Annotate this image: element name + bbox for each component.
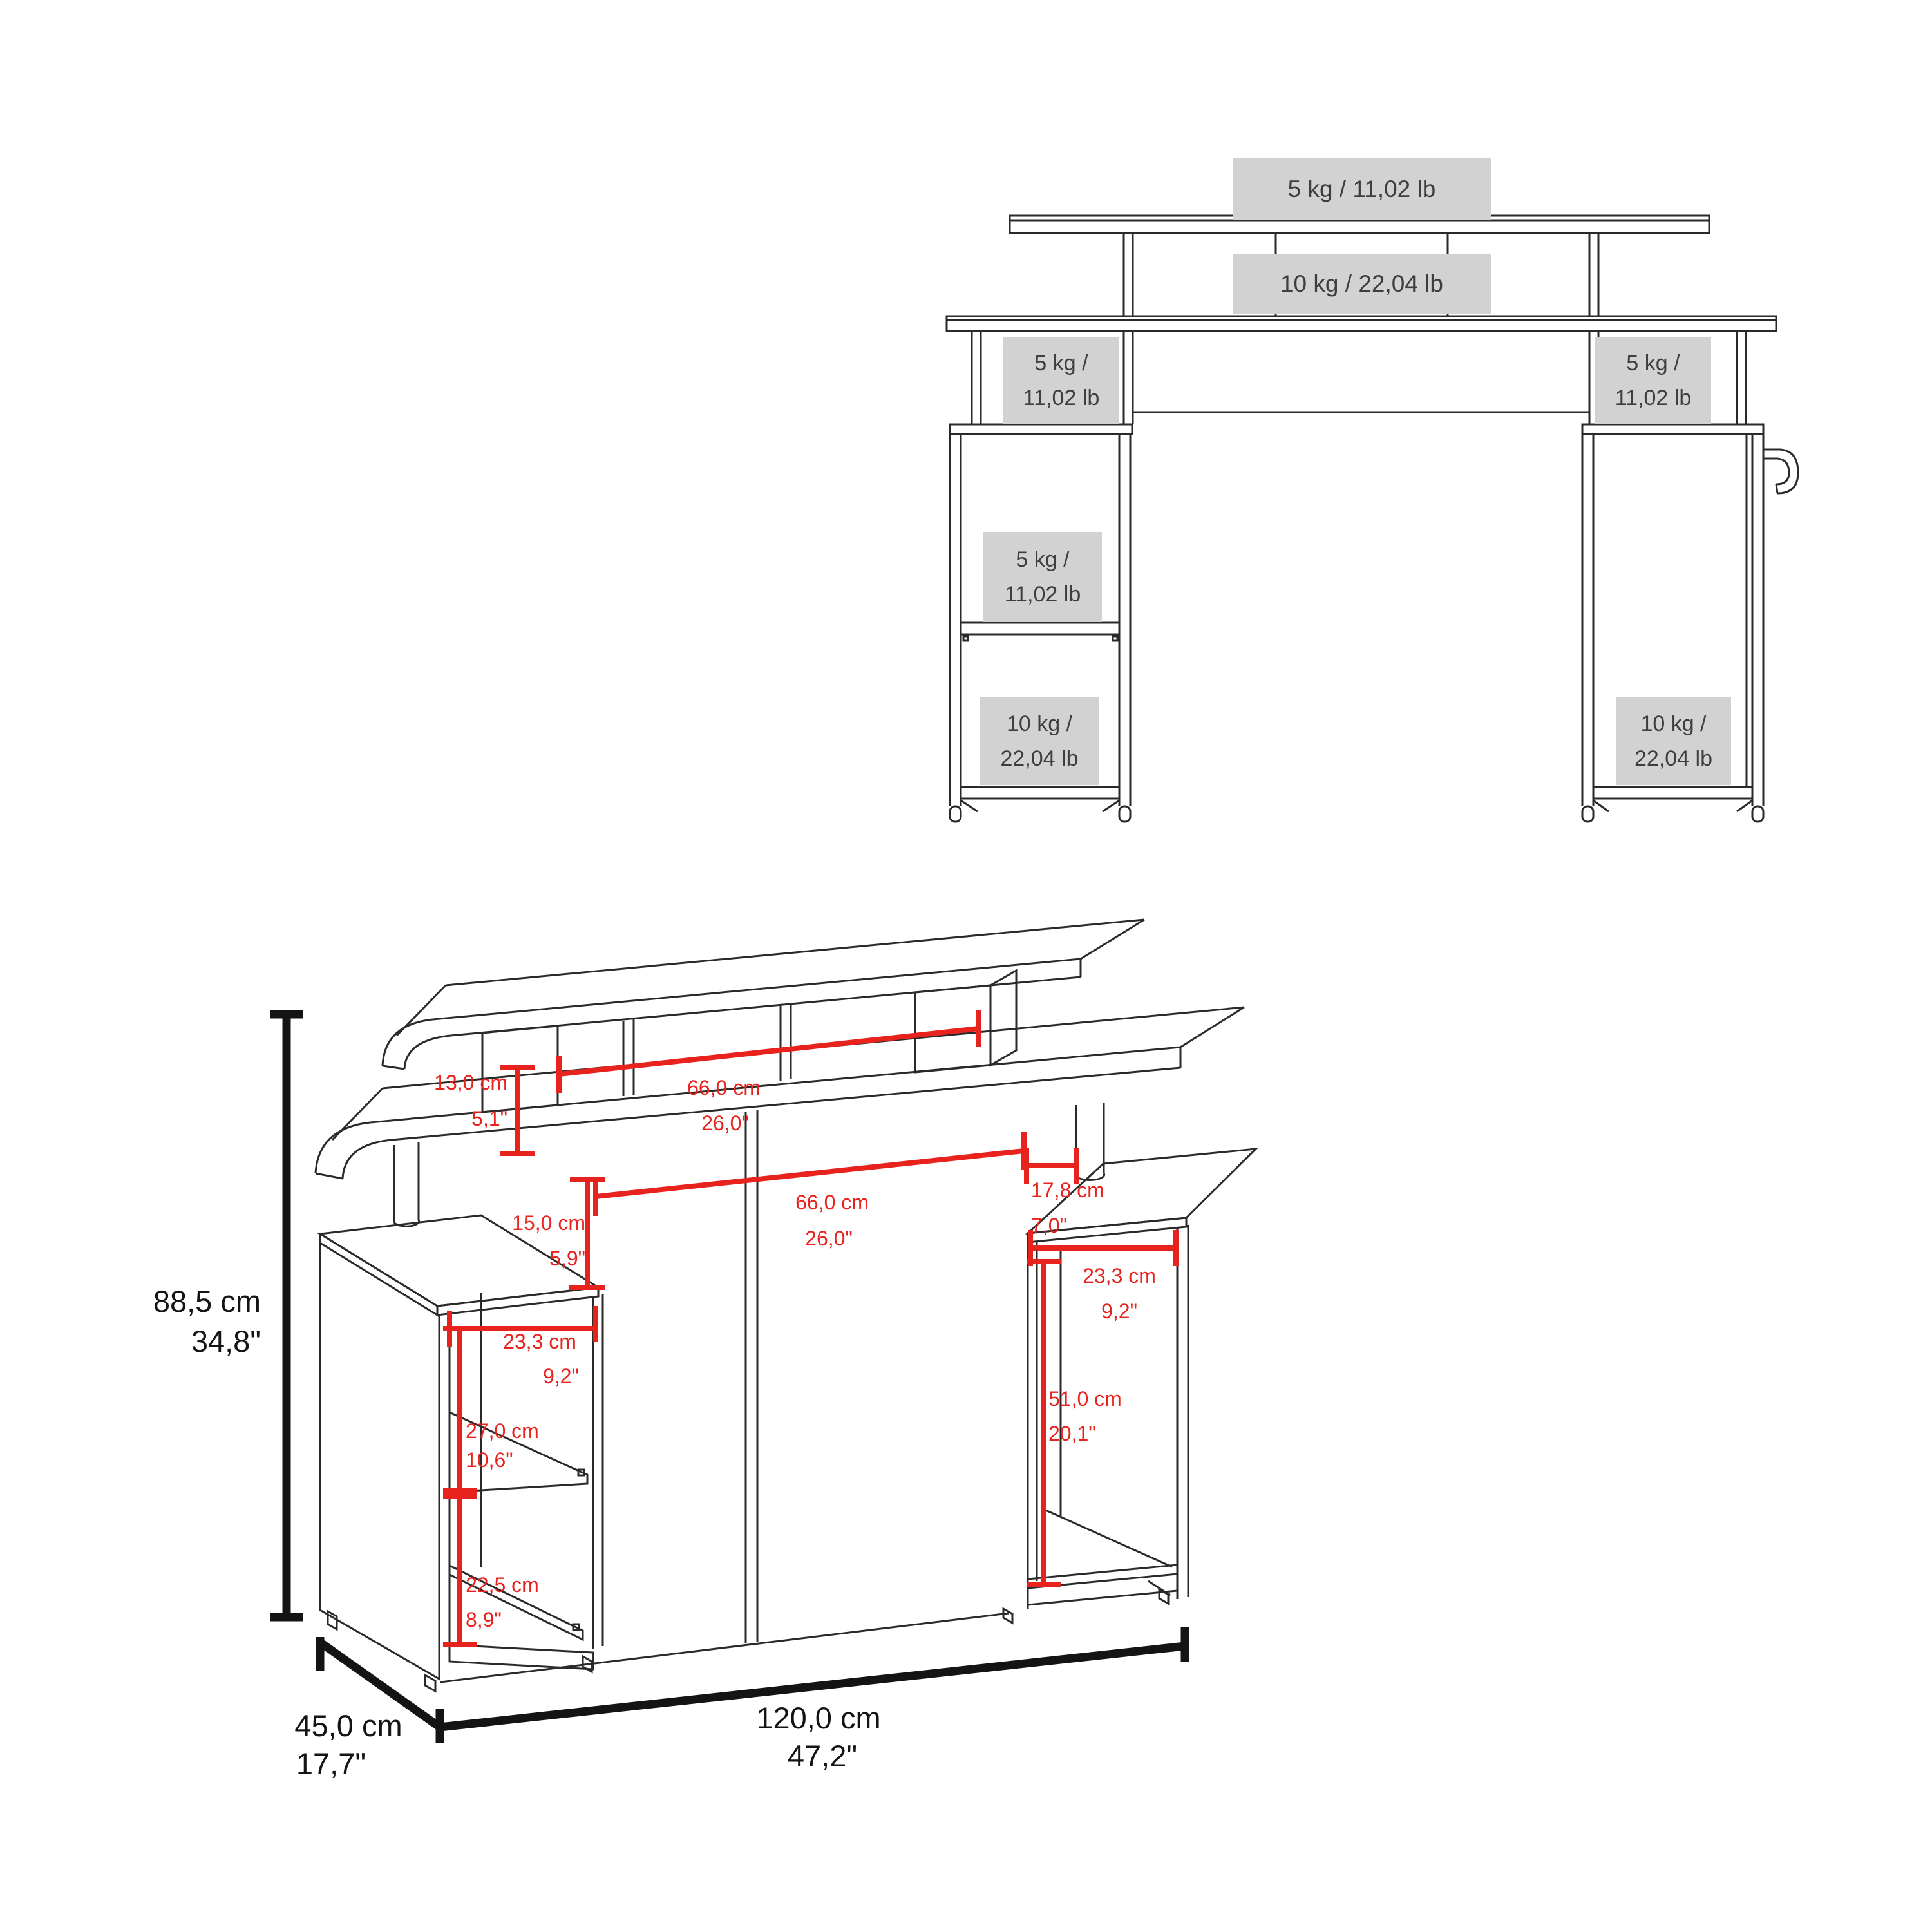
- iso-left-pedestal-top-band: [437, 1287, 598, 1315]
- dim-text-27-in: 10,6": [466, 1449, 633, 1471]
- dim-text-width-cm: 120,0 cm: [690, 1702, 947, 1734]
- iso-shelf-left-end: [383, 1066, 404, 1069]
- iso-left-pedestal-top-end: [320, 1234, 437, 1315]
- load-label-line: 5 kg /: [1626, 346, 1680, 381]
- dim-text-66-shelf-cm: 66,0 cm: [627, 1077, 820, 1099]
- front-left-pedestal-top: [950, 424, 1132, 434]
- dim-text-15-in: 5,9": [424, 1247, 585, 1269]
- front-foot: [1119, 806, 1130, 822]
- front-foot: [1582, 806, 1593, 822]
- headphone-hook-icon: [1776, 484, 1777, 493]
- dim-text-13-cm: 13,0 cm: [346, 1072, 507, 1094]
- load-label-line: 10 kg /: [1640, 706, 1706, 741]
- headphone-hook-icon: [1763, 450, 1798, 493]
- dim-text-23l-cm: 23,3 cm: [443, 1331, 636, 1352]
- iso-foot: [1003, 1609, 1012, 1623]
- load-label-right-riser: 5 kg / 11,02 lb: [1595, 337, 1711, 424]
- dim-text-width-in: 47,2": [694, 1740, 951, 1772]
- front-foot: [1752, 806, 1763, 822]
- spec-sheet-page: 5 kg / 11,02 lb 10 kg / 22,04 lb 5 kg / …: [0, 0, 1932, 1932]
- iso-desktop-left-end: [316, 1173, 343, 1179]
- dim-text-17-cm: 17,8 cm: [1031, 1179, 1198, 1201]
- front-shelf-pin: [1113, 636, 1117, 641]
- front-corner-brace: [1593, 800, 1609, 811]
- front-desktop-board: [947, 316, 1776, 331]
- load-label-line: 22,04 lb: [1634, 741, 1712, 776]
- front-right-pedestal-kick: [1593, 787, 1752, 799]
- load-label-line: 10 kg /: [1007, 706, 1072, 741]
- dim-text-66-desk-cm: 66,0 cm: [735, 1191, 929, 1213]
- iso-left-pedestal-side-panel: [320, 1243, 439, 1679]
- iso-foot: [425, 1675, 435, 1691]
- dim-text-depth-in: 17,7": [234, 1748, 428, 1780]
- dim-text-51-in: 20,1": [1048, 1423, 1216, 1444]
- front-foot: [950, 806, 961, 822]
- load-label-left-middle-shelf: 5 kg / 11,02 lb: [983, 532, 1102, 622]
- dim-text-height-in: 34,8": [68, 1325, 261, 1358]
- front-right-pedestal-top: [1582, 424, 1763, 434]
- headphone-hook-icon: [1763, 459, 1789, 484]
- iso-shelf-back-edge: [446, 920, 1144, 985]
- load-label-line: 11,02 lb: [1615, 381, 1691, 415]
- load-label-right-cabinet: 10 kg / 22,04 lb: [1616, 697, 1731, 785]
- load-label-line: 11,02 lb: [1005, 577, 1081, 612]
- load-label-desktop: 10 kg / 22,04 lb: [1233, 254, 1491, 314]
- iso-foot: [328, 1611, 337, 1629]
- iso-shelf-front-top-edge: [383, 959, 1081, 1066]
- dim-text-17-in: 7,0": [1031, 1215, 1198, 1236]
- dim-text-depth-cm: 45,0 cm: [252, 1710, 445, 1742]
- load-label-left-riser: 5 kg / 11,02 lb: [1003, 337, 1119, 424]
- dim-text-51-cm: 51,0 cm: [1048, 1388, 1216, 1410]
- dim-text-13-in: 5,1": [346, 1108, 507, 1130]
- front-corner-brace: [1103, 800, 1119, 811]
- front-left-pedestal-kick: [961, 787, 1119, 799]
- front-corner-brace: [1737, 800, 1752, 811]
- iso-right-pedestal-kick: [1028, 1591, 1177, 1605]
- dim-66-desk-line: [596, 1151, 1024, 1197]
- dim-text-22-in: 8,9": [466, 1609, 633, 1631]
- dim-text-23r-in: 9,2": [1023, 1300, 1216, 1322]
- front-left-pedestal-shelf: [961, 623, 1119, 634]
- dim-text-height-cm: 88,5 cm: [68, 1285, 261, 1318]
- load-label-line: 5 kg /: [1016, 542, 1069, 577]
- dim-text-27-cm: 27,0 cm: [466, 1420, 633, 1442]
- iso-shelf-left-top-edge: [397, 985, 446, 1036]
- dim-text-15-cm: 15,0 cm: [424, 1212, 585, 1234]
- dim-text-23r-cm: 23,3 cm: [1023, 1265, 1216, 1287]
- dim-text-66-shelf-in: 26,0": [629, 1112, 822, 1134]
- iso-right-pedestal-floor-edge: [1041, 1508, 1172, 1567]
- load-label-line: 22,04 lb: [1001, 741, 1079, 776]
- load-label-line: 5 kg /: [1034, 346, 1088, 381]
- dim-text-66-desk-in: 26,0": [732, 1227, 925, 1249]
- front-shelf-pin: [963, 636, 968, 641]
- load-label-monitor-shelf: 5 kg / 11,02 lb: [1233, 158, 1491, 220]
- dim-text-23l-in: 9,2": [464, 1365, 658, 1387]
- dim-text-22-cm: 22,5 cm: [466, 1574, 633, 1596]
- front-corner-brace: [961, 800, 978, 811]
- load-label-line: 11,02 lb: [1023, 381, 1099, 415]
- diagram-linework: [0, 0, 1932, 1932]
- load-label-left-bottom-shelf: 10 kg / 22,04 lb: [980, 697, 1099, 785]
